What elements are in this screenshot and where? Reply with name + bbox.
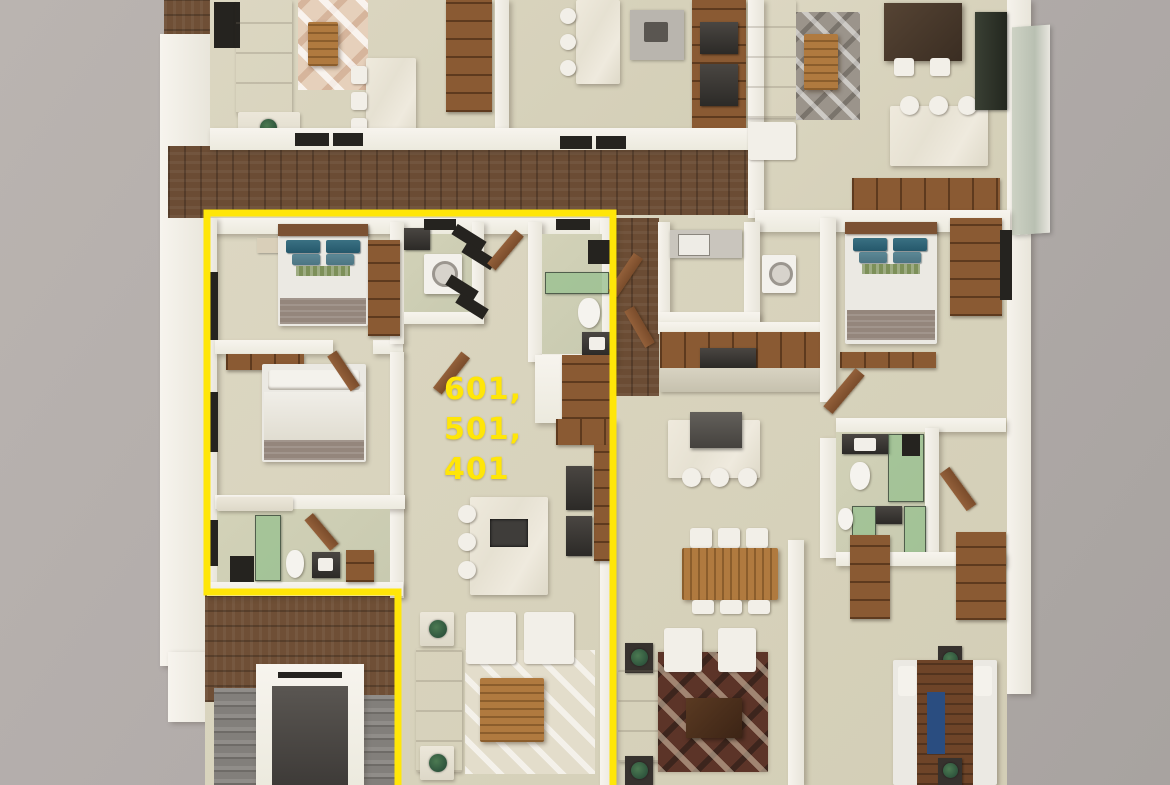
dining-chair (560, 60, 576, 76)
wardrobe (368, 240, 400, 336)
wall (744, 222, 760, 322)
wall (215, 340, 333, 354)
range (700, 348, 756, 368)
stool (458, 561, 476, 579)
armchair (524, 612, 574, 664)
desk-chair (230, 556, 254, 582)
coffee-table (686, 698, 742, 738)
bed-pillow (974, 666, 992, 696)
wardrobe (956, 532, 1006, 620)
dining-chair (930, 58, 950, 76)
wardrobe (950, 218, 1002, 316)
unit-number-line: 501, (444, 410, 522, 450)
pillow (292, 254, 320, 265)
wardrobe (850, 535, 890, 619)
plant-pot (631, 762, 648, 779)
cabinet (346, 550, 374, 582)
pillow (859, 252, 887, 263)
wall (820, 218, 836, 402)
pillow (853, 238, 887, 251)
wall (925, 428, 939, 554)
wall (836, 418, 1006, 432)
kitchen-counter-dark (975, 12, 1007, 110)
stool (710, 468, 729, 487)
bed-headboard (278, 224, 368, 236)
window (556, 219, 590, 230)
oven (700, 22, 738, 54)
bed-blanket (280, 298, 366, 324)
window (206, 520, 218, 566)
bed-headboard (845, 222, 937, 234)
plant-pot (429, 620, 447, 638)
island-hood (690, 412, 742, 448)
coffee-table (480, 678, 544, 742)
plant-pot (943, 763, 958, 778)
kitchen-sink (644, 22, 668, 42)
kitchen-counter (594, 445, 612, 561)
elevator-interior (272, 686, 348, 785)
elevator-door-rail (278, 672, 342, 678)
bed-runner-blue (927, 692, 945, 754)
sofa (618, 670, 662, 762)
coffee-table (308, 22, 338, 66)
window (206, 392, 218, 452)
window (206, 272, 218, 340)
hallway-wood-strip (615, 218, 659, 396)
unit-number-line: 601, (444, 370, 522, 410)
vanity (404, 228, 430, 250)
dining-chair (692, 600, 714, 614)
washer-door (769, 262, 793, 286)
wall-corridor-top (210, 128, 762, 150)
pillow (286, 240, 320, 253)
shower-glass (255, 515, 281, 581)
window (1000, 230, 1012, 300)
glass-balustrade-right (1012, 25, 1050, 236)
shower-panel (902, 434, 920, 456)
bar-stool (929, 96, 948, 115)
bed-runner (296, 266, 350, 276)
bed-blanket (264, 440, 364, 460)
wall (820, 438, 836, 558)
window (424, 219, 456, 230)
toilet (578, 298, 600, 328)
toilet (850, 462, 870, 490)
window (333, 133, 363, 146)
toilet (838, 508, 853, 530)
oven-stack (566, 466, 592, 510)
wall-kitchen-block (535, 355, 563, 423)
pillow (326, 240, 360, 253)
dining-chair (748, 600, 770, 614)
window (560, 136, 592, 149)
stool (682, 468, 701, 487)
dining-chair (720, 600, 742, 614)
sink (854, 438, 876, 451)
shower-glass (904, 506, 926, 554)
pillow (893, 238, 927, 251)
kitchen-upper-cabinet (562, 355, 610, 419)
tall-cabinet (446, 0, 492, 112)
kitchen-bar (890, 106, 988, 166)
vanity (876, 506, 902, 524)
sink (589, 337, 605, 350)
dining-chair (718, 528, 740, 548)
cabinet-row (852, 178, 1000, 212)
dining-table (682, 548, 778, 600)
coffee-table (804, 34, 838, 90)
bar-stool (900, 96, 919, 115)
refrigerator (566, 516, 592, 556)
shelf (217, 497, 293, 511)
shower-glass (545, 272, 609, 294)
bed-pillow (898, 666, 916, 696)
pillow (893, 252, 921, 263)
pillow (326, 254, 354, 265)
dining-chair (894, 58, 914, 76)
plant-pot (429, 754, 447, 772)
sofa (746, 0, 796, 118)
dining-chair (351, 66, 367, 84)
wall (404, 312, 484, 324)
dining-table (576, 0, 620, 84)
wall (495, 0, 509, 134)
dining-chair (351, 92, 367, 110)
dining-table (884, 3, 962, 61)
plant-pot (631, 649, 648, 666)
wall (658, 222, 670, 322)
bench (840, 352, 936, 368)
kitchen-counter (660, 368, 820, 392)
wall (207, 582, 403, 596)
stool (738, 468, 757, 487)
unit-number-line: 401 (444, 450, 522, 490)
window (596, 136, 626, 149)
toilet (286, 550, 304, 578)
kitchen-counter (556, 419, 612, 445)
dining-chair (746, 528, 768, 548)
armchair (718, 628, 756, 672)
bed-runner (862, 264, 920, 274)
sink (678, 234, 710, 256)
armchair (748, 122, 796, 160)
corridor-wood-floor (168, 146, 762, 218)
stool (458, 533, 476, 551)
wall (390, 352, 404, 598)
floor-plan-render: 601, 501, 401 (0, 0, 1170, 785)
armchair (466, 612, 516, 664)
stool (458, 505, 476, 523)
sink (318, 558, 333, 571)
cooktop (490, 519, 528, 547)
dining-chair (690, 528, 712, 548)
shower-panel (588, 240, 610, 264)
dining-chair (560, 34, 576, 50)
refrigerator (700, 64, 738, 106)
armchair (664, 628, 702, 672)
wall (528, 222, 542, 362)
dining-chair (560, 8, 576, 24)
wall (788, 540, 804, 785)
stairs (214, 688, 260, 785)
stairs (362, 695, 396, 785)
window (295, 133, 329, 146)
bed-blanket (847, 310, 935, 340)
sofa (236, 0, 292, 114)
unit-number-label: 601, 501, 401 (444, 370, 522, 490)
